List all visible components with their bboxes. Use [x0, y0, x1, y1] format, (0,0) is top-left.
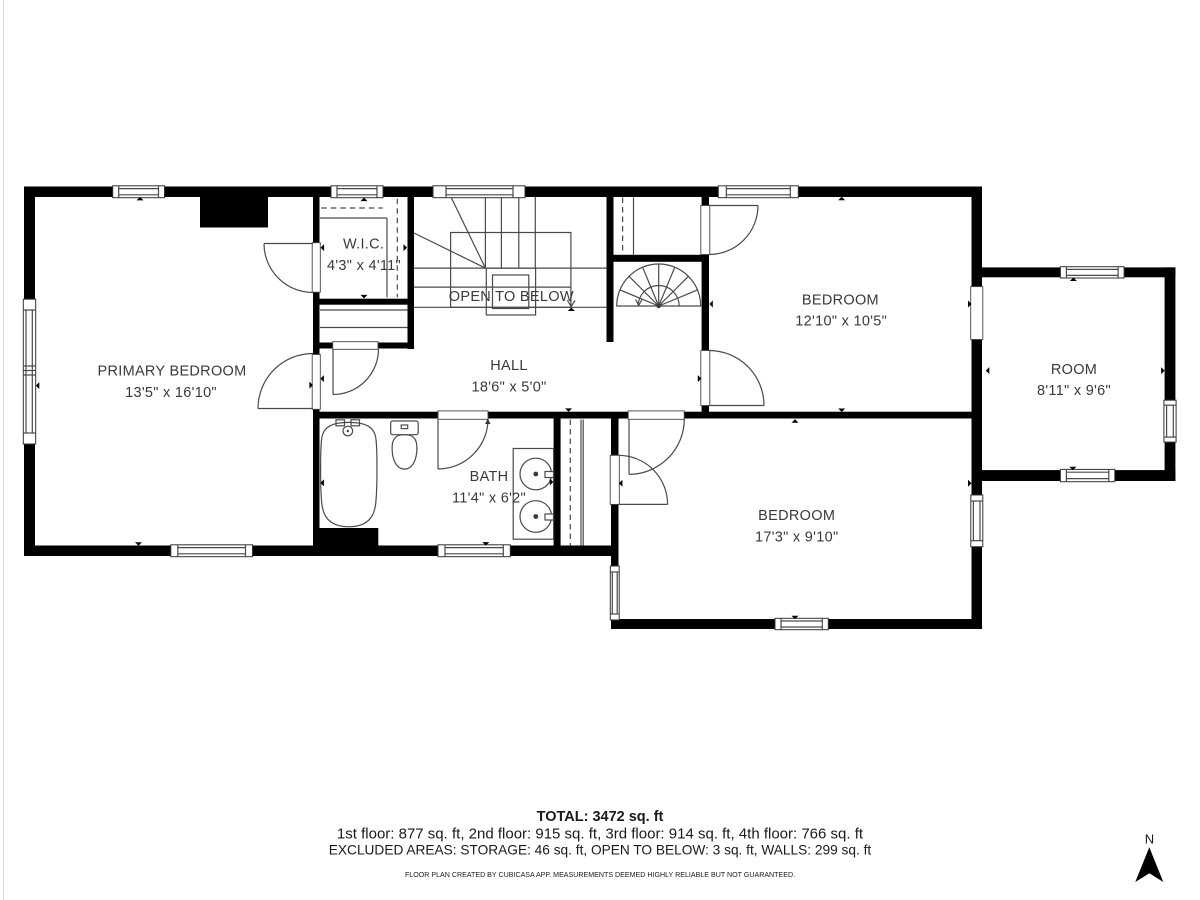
svg-text:BATH: BATH: [470, 469, 509, 485]
svg-text:EXCLUDED AREAS: STORAGE: 46 sq: EXCLUDED AREAS: STORAGE: 46 sq. ft, OPEN…: [329, 843, 872, 858]
svg-text:8'11" x 9'6": 8'11" x 9'6": [1037, 383, 1111, 399]
svg-text:N: N: [1145, 832, 1154, 847]
svg-text:OPEN TO BELOW: OPEN TO BELOW: [449, 289, 574, 305]
svg-text:11'4" x 6'2": 11'4" x 6'2": [452, 491, 526, 507]
svg-text:13'5" x 16'10": 13'5" x 16'10": [125, 385, 217, 401]
svg-text:BEDROOM: BEDROOM: [758, 508, 835, 524]
svg-text:ROOM: ROOM: [1051, 362, 1097, 378]
svg-text:BEDROOM: BEDROOM: [802, 293, 879, 309]
svg-text:HALL: HALL: [490, 358, 527, 374]
svg-text:FLOOR PLAN CREATED BY CUBICASA: FLOOR PLAN CREATED BY CUBICASA APP. MEAS…: [405, 871, 795, 879]
svg-text:PRIMARY BEDROOM: PRIMARY BEDROOM: [98, 364, 247, 380]
svg-text:1st floor: 877 sq. ft, 2nd flo: 1st floor: 877 sq. ft, 2nd floor: 915 sq…: [337, 826, 864, 843]
svg-text:TOTAL: 3472 sq. ft: TOTAL: 3472 sq. ft: [537, 809, 664, 825]
svg-text:12'10" x 10'5": 12'10" x 10'5": [795, 313, 887, 329]
svg-text:W.I.C.: W.I.C.: [343, 237, 384, 253]
svg-text:4'3" x 4'11": 4'3" x 4'11": [327, 258, 401, 274]
svg-text:18'6" x 5'0": 18'6" x 5'0": [471, 379, 546, 395]
svg-text:17'3" x 9'10": 17'3" x 9'10": [755, 529, 838, 545]
